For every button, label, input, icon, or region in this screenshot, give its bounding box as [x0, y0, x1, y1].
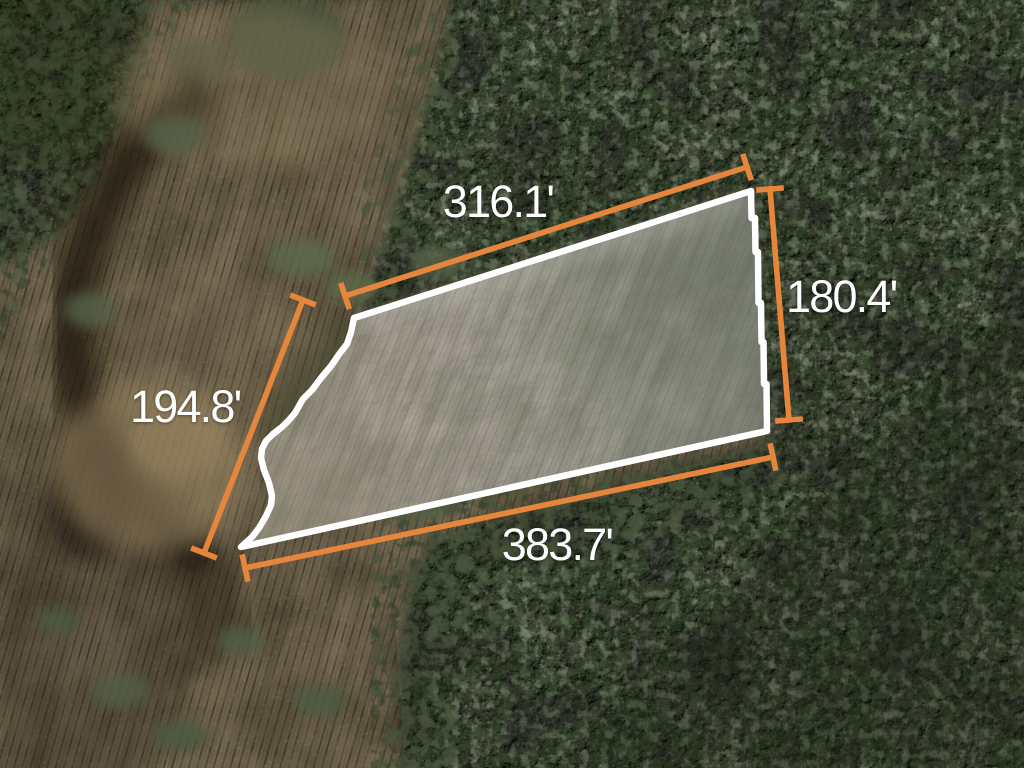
svg-text:194.8': 194.8' — [130, 381, 241, 432]
svg-text:383.7': 383.7' — [502, 519, 613, 570]
svg-text:316.1': 316.1' — [443, 176, 554, 227]
svg-text:180.4': 180.4' — [786, 271, 897, 322]
